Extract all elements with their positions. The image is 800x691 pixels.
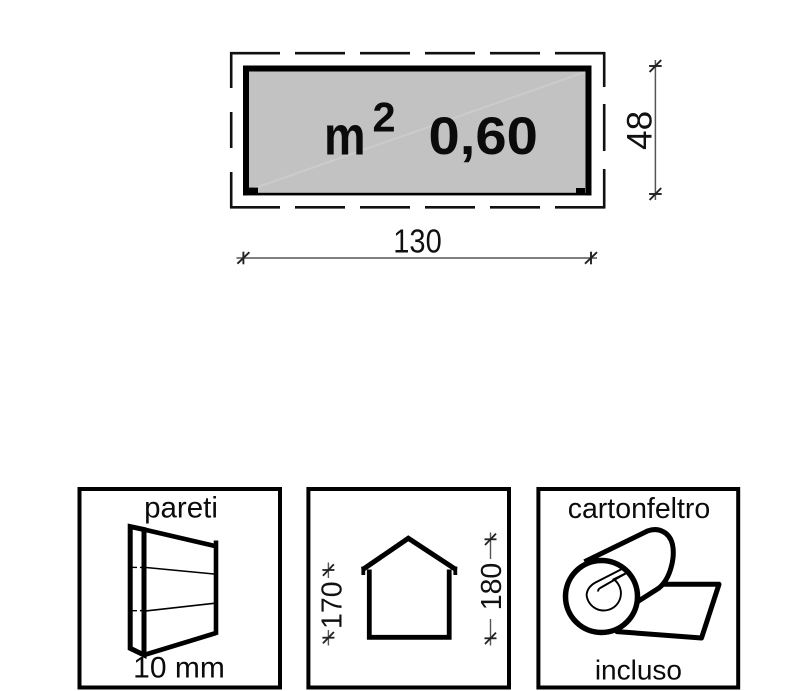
svg-text:pareti: pareti bbox=[144, 492, 218, 525]
svg-text:incluso: incluso bbox=[595, 655, 682, 686]
svg-text:10 mm: 10 mm bbox=[133, 651, 225, 684]
svg-text:170: 170 bbox=[317, 581, 349, 629]
svg-text:2: 2 bbox=[373, 94, 396, 141]
svg-text:m: m bbox=[324, 105, 366, 166]
svg-text:cartonfeltro: cartonfeltro bbox=[568, 493, 711, 525]
svg-text:130: 130 bbox=[393, 223, 441, 260]
svg-text:0,60: 0,60 bbox=[429, 106, 538, 165]
svg-text:48: 48 bbox=[621, 111, 660, 150]
svg-text:180: 180 bbox=[476, 563, 508, 611]
